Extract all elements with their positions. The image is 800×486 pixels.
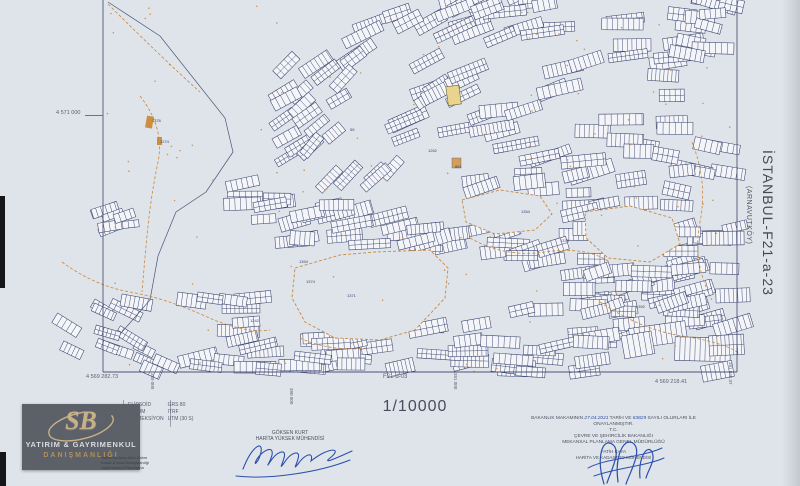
signer-title: HARİTA VE KADASTRO MÜHENDİSİ [516,455,711,461]
logo-monogram: SB [22,406,140,436]
approval-number-handwritten: 83829 [633,416,646,421]
easting-label-1: 389 000 [150,373,155,389]
scanned-cadastral-sheet: 5513711394137413541378137612741262124213… [0,0,800,486]
svg-text:1274: 1274 [160,139,170,144]
datum-value: ITRF [168,409,198,416]
sheet-subtitle: (ARNAVUTKÖY) [745,186,752,244]
svg-text:861: 861 [455,164,462,169]
easting-label-4: 391 842.37 [728,362,733,385]
logo-line1: YATIRIM & GAYRIMENKUL [22,440,140,449]
svg-text:1394: 1394 [299,259,309,264]
surveyor-title: HARİTA YÜKSEK MÜHENDİSİ [230,436,350,442]
service-item: Gayrimenkul Pazarlama [101,465,149,470]
approval-line: BAKANLIK MAKAMININ 27.04.2021 TARİH VE 8… [516,416,711,428]
northing-tick [85,115,103,116]
logo-service-list: Yatırımlık Arsa Alım Satım Konut & Arsa … [101,455,149,470]
svg-text:1376: 1376 [152,118,162,123]
page-edge-shading [782,0,800,486]
datum-value: GRS 80 [168,402,198,409]
sheet-title: İSTANBUL-F21-a-23 [760,150,776,296]
svg-text:1354: 1354 [521,209,531,214]
approval-date-handwritten: 27.04.2021 [584,416,608,421]
svg-text:1242: 1242 [250,318,260,323]
svg-text:1392: 1392 [636,304,646,309]
surveyor-block: GÖKSEN KURT HARİTA YÜKSEK MÜHENDİSİ [230,430,350,442]
datum-value: UTM (30 S) [168,416,198,423]
coord-bottom-right: 4 569 218.41 [655,379,687,385]
coord-bottom-left: 4 569 282.73 [86,374,118,380]
svg-text:1378: 1378 [560,238,570,243]
scan-artifact-bar [0,196,5,288]
svg-text:1374: 1374 [306,279,316,284]
adjacent-sheet-label: F21-d-03 [383,374,407,380]
approval-block: BAKANLIK MAKAMININ 27.04.2021 TARİH VE 8… [516,416,711,461]
svg-text:55: 55 [350,127,355,132]
easting-label-2: 390 000 [289,388,294,404]
scan-artifact-bar [0,452,6,486]
easting-label-3: 391 000 [453,373,458,389]
map-scale: 1/10000 [355,398,475,416]
coord-top-left: 4 571 000 [56,110,80,116]
svg-text:1371: 1371 [347,293,357,298]
svg-text:1262: 1262 [428,148,438,153]
ministry-directorate: MEKANSAL PLANLAMA GENEL MÜDÜRLÜĞÜ [516,440,711,446]
